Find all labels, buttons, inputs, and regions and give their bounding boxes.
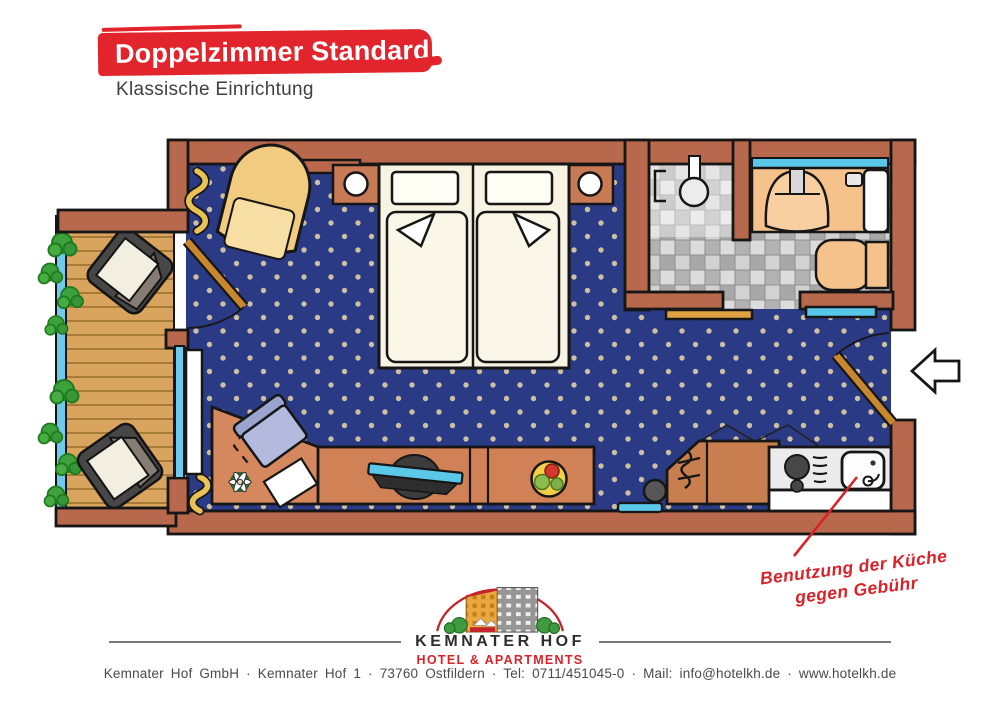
pillow-right — [486, 172, 552, 204]
toilet-tank — [866, 242, 888, 288]
pillow-left — [392, 172, 458, 204]
footer-contact: Kemnater Hof GmbH · Kemnater Hof 1 · 737… — [0, 666, 1000, 681]
entrance-arrow-icon — [912, 350, 959, 392]
nightstand-right — [567, 165, 613, 204]
logo-name: KEMNATER HOF — [415, 633, 585, 651]
page-title: Doppelzimmer Standard — [98, 29, 433, 76]
bedside-lamp-left — [345, 173, 368, 196]
divider-left — [109, 641, 401, 643]
title-banner: Doppelzimmer Standard — [98, 29, 433, 76]
bench-blue — [806, 307, 876, 317]
flyer-page: Doppelzimmer Standard Klassische Einrich… — [0, 0, 1000, 707]
toilet-bowl — [816, 240, 870, 290]
hotel-logo: KEMNATER HOF HOTEL & APARTMENTS — [0, 576, 1000, 667]
nightstand-left — [333, 165, 379, 204]
kitchen-sink — [842, 452, 884, 489]
double-bed — [379, 164, 569, 368]
floor-mat — [618, 503, 662, 512]
duvet-right — [477, 212, 559, 362]
stove-burner-small — [791, 480, 803, 492]
faucet — [790, 169, 804, 194]
trash-bin — [644, 480, 666, 502]
stove-burner-large — [785, 455, 809, 479]
logo-name-row: KEMNATER HOF — [109, 633, 891, 651]
kitchenette — [769, 447, 891, 511]
hotel-emblem-icon — [425, 576, 575, 634]
balcony-door-panel — [186, 350, 202, 474]
logo-tagline: HOTEL & APARTMENTS — [417, 653, 584, 667]
shower-drain — [680, 178, 708, 206]
balcony — [39, 216, 177, 512]
balcony-window — [175, 346, 184, 478]
towel-radiator — [864, 170, 888, 232]
tv-sideboard — [318, 447, 594, 504]
divider-right — [599, 641, 891, 643]
fruit-bowl — [532, 462, 567, 497]
soap-dish — [846, 173, 862, 186]
bedside-lamp-right — [579, 173, 602, 196]
floorplan — [0, 130, 1000, 570]
bench-wood — [666, 310, 752, 319]
vanity-mirror — [752, 158, 888, 168]
page-subtitle: Klassische Einrichtung — [116, 79, 314, 101]
